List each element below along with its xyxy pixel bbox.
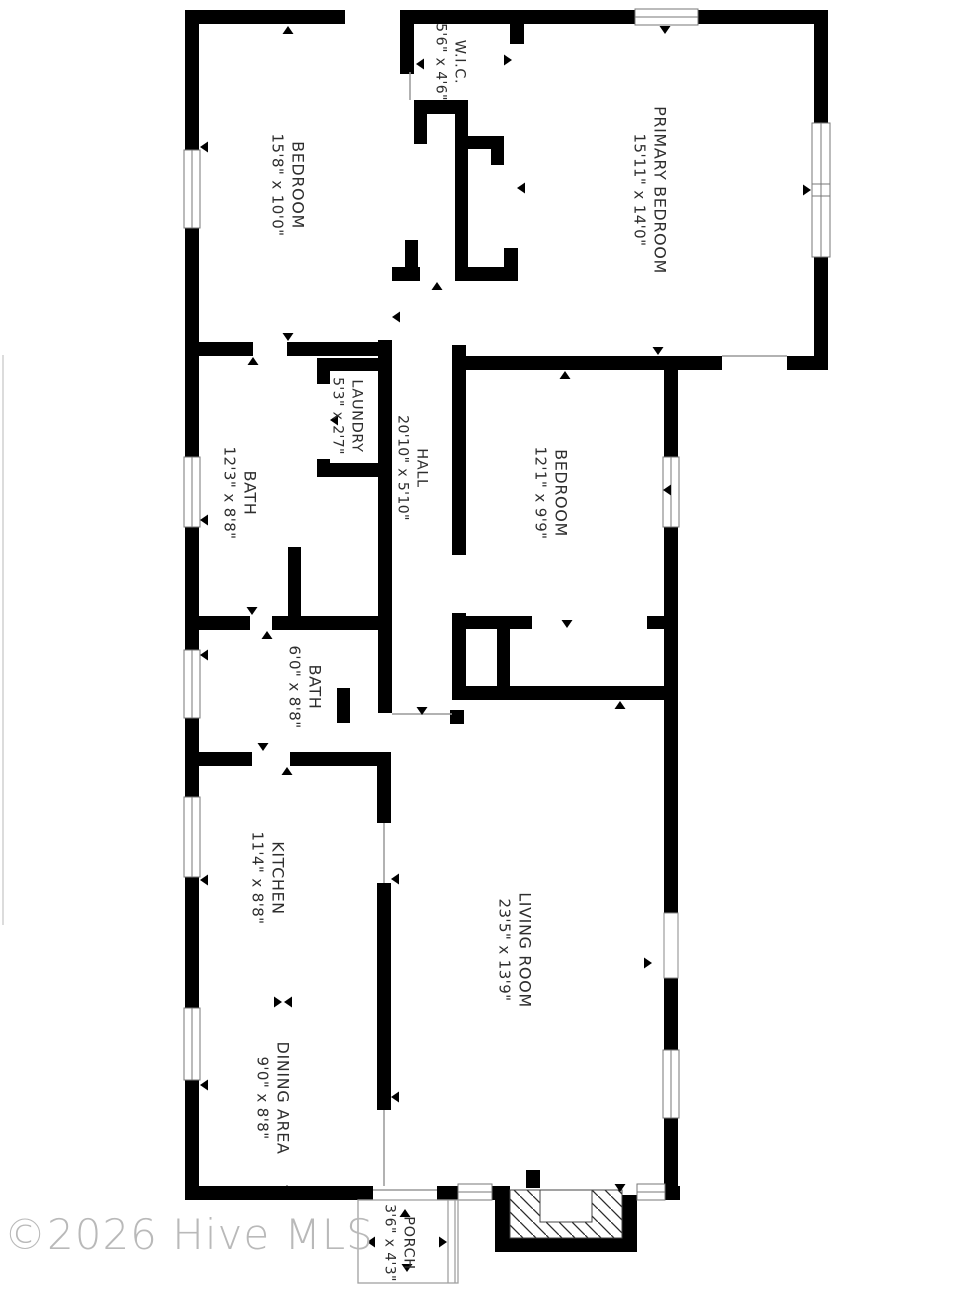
room-label-hall: HALL 20'10" x 5'10" — [394, 415, 431, 521]
window-dining-left — [184, 1008, 200, 1080]
room-dimensions: 3'6" x 4'3" — [381, 1204, 399, 1282]
window-kitchen-left — [184, 797, 200, 877]
window-primary-top — [635, 9, 698, 25]
room-name: BEDROOM — [551, 447, 572, 540]
window-bedroom1-left — [184, 150, 200, 228]
openings-layer — [373, 72, 787, 1190]
room-name: PORCH — [399, 1204, 418, 1282]
room-dimensions: 20'10" x 5'10" — [394, 415, 412, 521]
floorplan-drawing — [0, 0, 973, 1290]
room-dimensions: 11'4" x 8'8" — [248, 832, 268, 925]
mls-watermark: ©2026 Hive MLS — [4, 1210, 374, 1259]
room-name: BATH — [240, 447, 261, 540]
room-label-porch: PORCH 3'6" x 4'3" — [381, 1204, 418, 1282]
room-name: BATH — [305, 645, 326, 728]
room-dimensions: 15'11" x 14'0" — [630, 106, 650, 274]
window-bottom-left-of-stairs — [458, 1184, 492, 1200]
room-label-dining-area: DINING AREA 9'0" x 8'8" — [253, 1042, 294, 1155]
room-dimensions: 12'3" x 8'8" — [220, 447, 240, 540]
stairs-landing — [540, 1190, 592, 1222]
room-dimensions: 9'0" x 8'8" — [253, 1042, 273, 1155]
floorplan-page: BEDROOM 15'8" x 10'0" W.I.C. 5'6" x 4'6"… — [0, 0, 973, 1290]
room-name: PRIMARY BEDROOM — [650, 106, 671, 274]
room-dimensions: 5'3" x 2'7" — [329, 377, 347, 455]
room-label-bath-1: BATH 12'3" x 8'8" — [220, 447, 261, 540]
room-name: BEDROOM — [288, 134, 309, 237]
window-living-right — [663, 1050, 679, 1118]
room-name: DINING AREA — [273, 1042, 294, 1155]
room-name: LAUNDRY — [347, 377, 366, 455]
entry-stairs — [510, 1190, 622, 1238]
room-label-wic: W.I.C. 5'6" x 4'6" — [432, 23, 469, 101]
room-label-bath-2: BATH 6'0" x 8'8" — [285, 645, 326, 728]
room-label-laundry: LAUNDRY 5'3" x 2'7" — [329, 377, 366, 455]
room-name: LIVING ROOM — [515, 892, 536, 1007]
room-dimensions: 5'6" x 4'6" — [432, 23, 450, 101]
window-bath2-left — [184, 650, 200, 718]
room-label-living-room: LIVING ROOM 23'5" x 13'9" — [495, 892, 536, 1007]
window-bath1-left — [184, 457, 200, 527]
room-dimensions: 23'5" x 13'9" — [495, 892, 515, 1007]
room-name: KITCHEN — [268, 832, 289, 925]
room-dimensions: 15'8" x 10'0" — [268, 134, 288, 237]
room-dimensions: 12'1" x 9'9" — [531, 447, 551, 540]
side-entry-door — [664, 913, 678, 978]
room-label-bedroom-2: BEDROOM 12'1" x 9'9" — [531, 447, 572, 540]
room-label-bedroom-1: BEDROOM 15'8" x 10'0" — [268, 134, 309, 237]
room-dimensions: 6'0" x 8'8" — [285, 645, 305, 728]
window-primary-right — [812, 123, 830, 257]
room-name: W.I.C. — [450, 23, 469, 101]
room-label-primary-bedroom: PRIMARY BEDROOM 15'11" x 14'0" — [630, 106, 671, 274]
window-bottom-right-of-stairs — [637, 1184, 665, 1200]
room-label-kitchen: KITCHEN 11'4" x 8'8" — [248, 832, 289, 925]
room-name: HALL — [412, 415, 431, 521]
